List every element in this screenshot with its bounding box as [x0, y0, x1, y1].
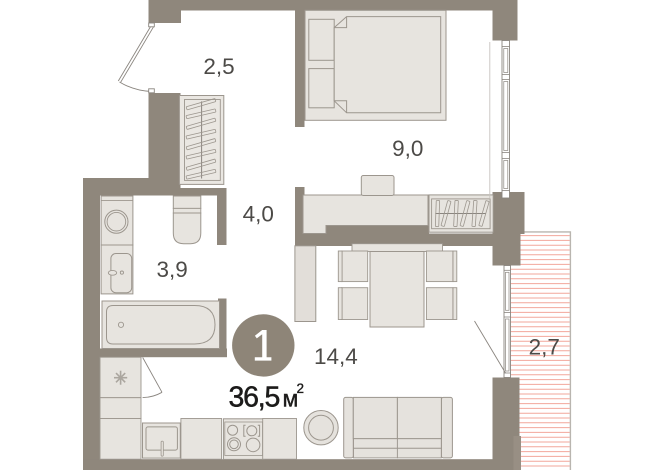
svg-text:4,0: 4,0 — [243, 202, 274, 227]
svg-text:2,5: 2,5 — [203, 54, 234, 79]
svg-text:3,9: 3,9 — [157, 257, 188, 282]
svg-text:2,7: 2,7 — [529, 335, 560, 360]
svg-text:14,4: 14,4 — [314, 344, 358, 369]
svg-text:9,0: 9,0 — [392, 136, 423, 161]
svg-text:36,5: 36,5 — [229, 382, 280, 414]
svg-text:2: 2 — [297, 381, 305, 396]
